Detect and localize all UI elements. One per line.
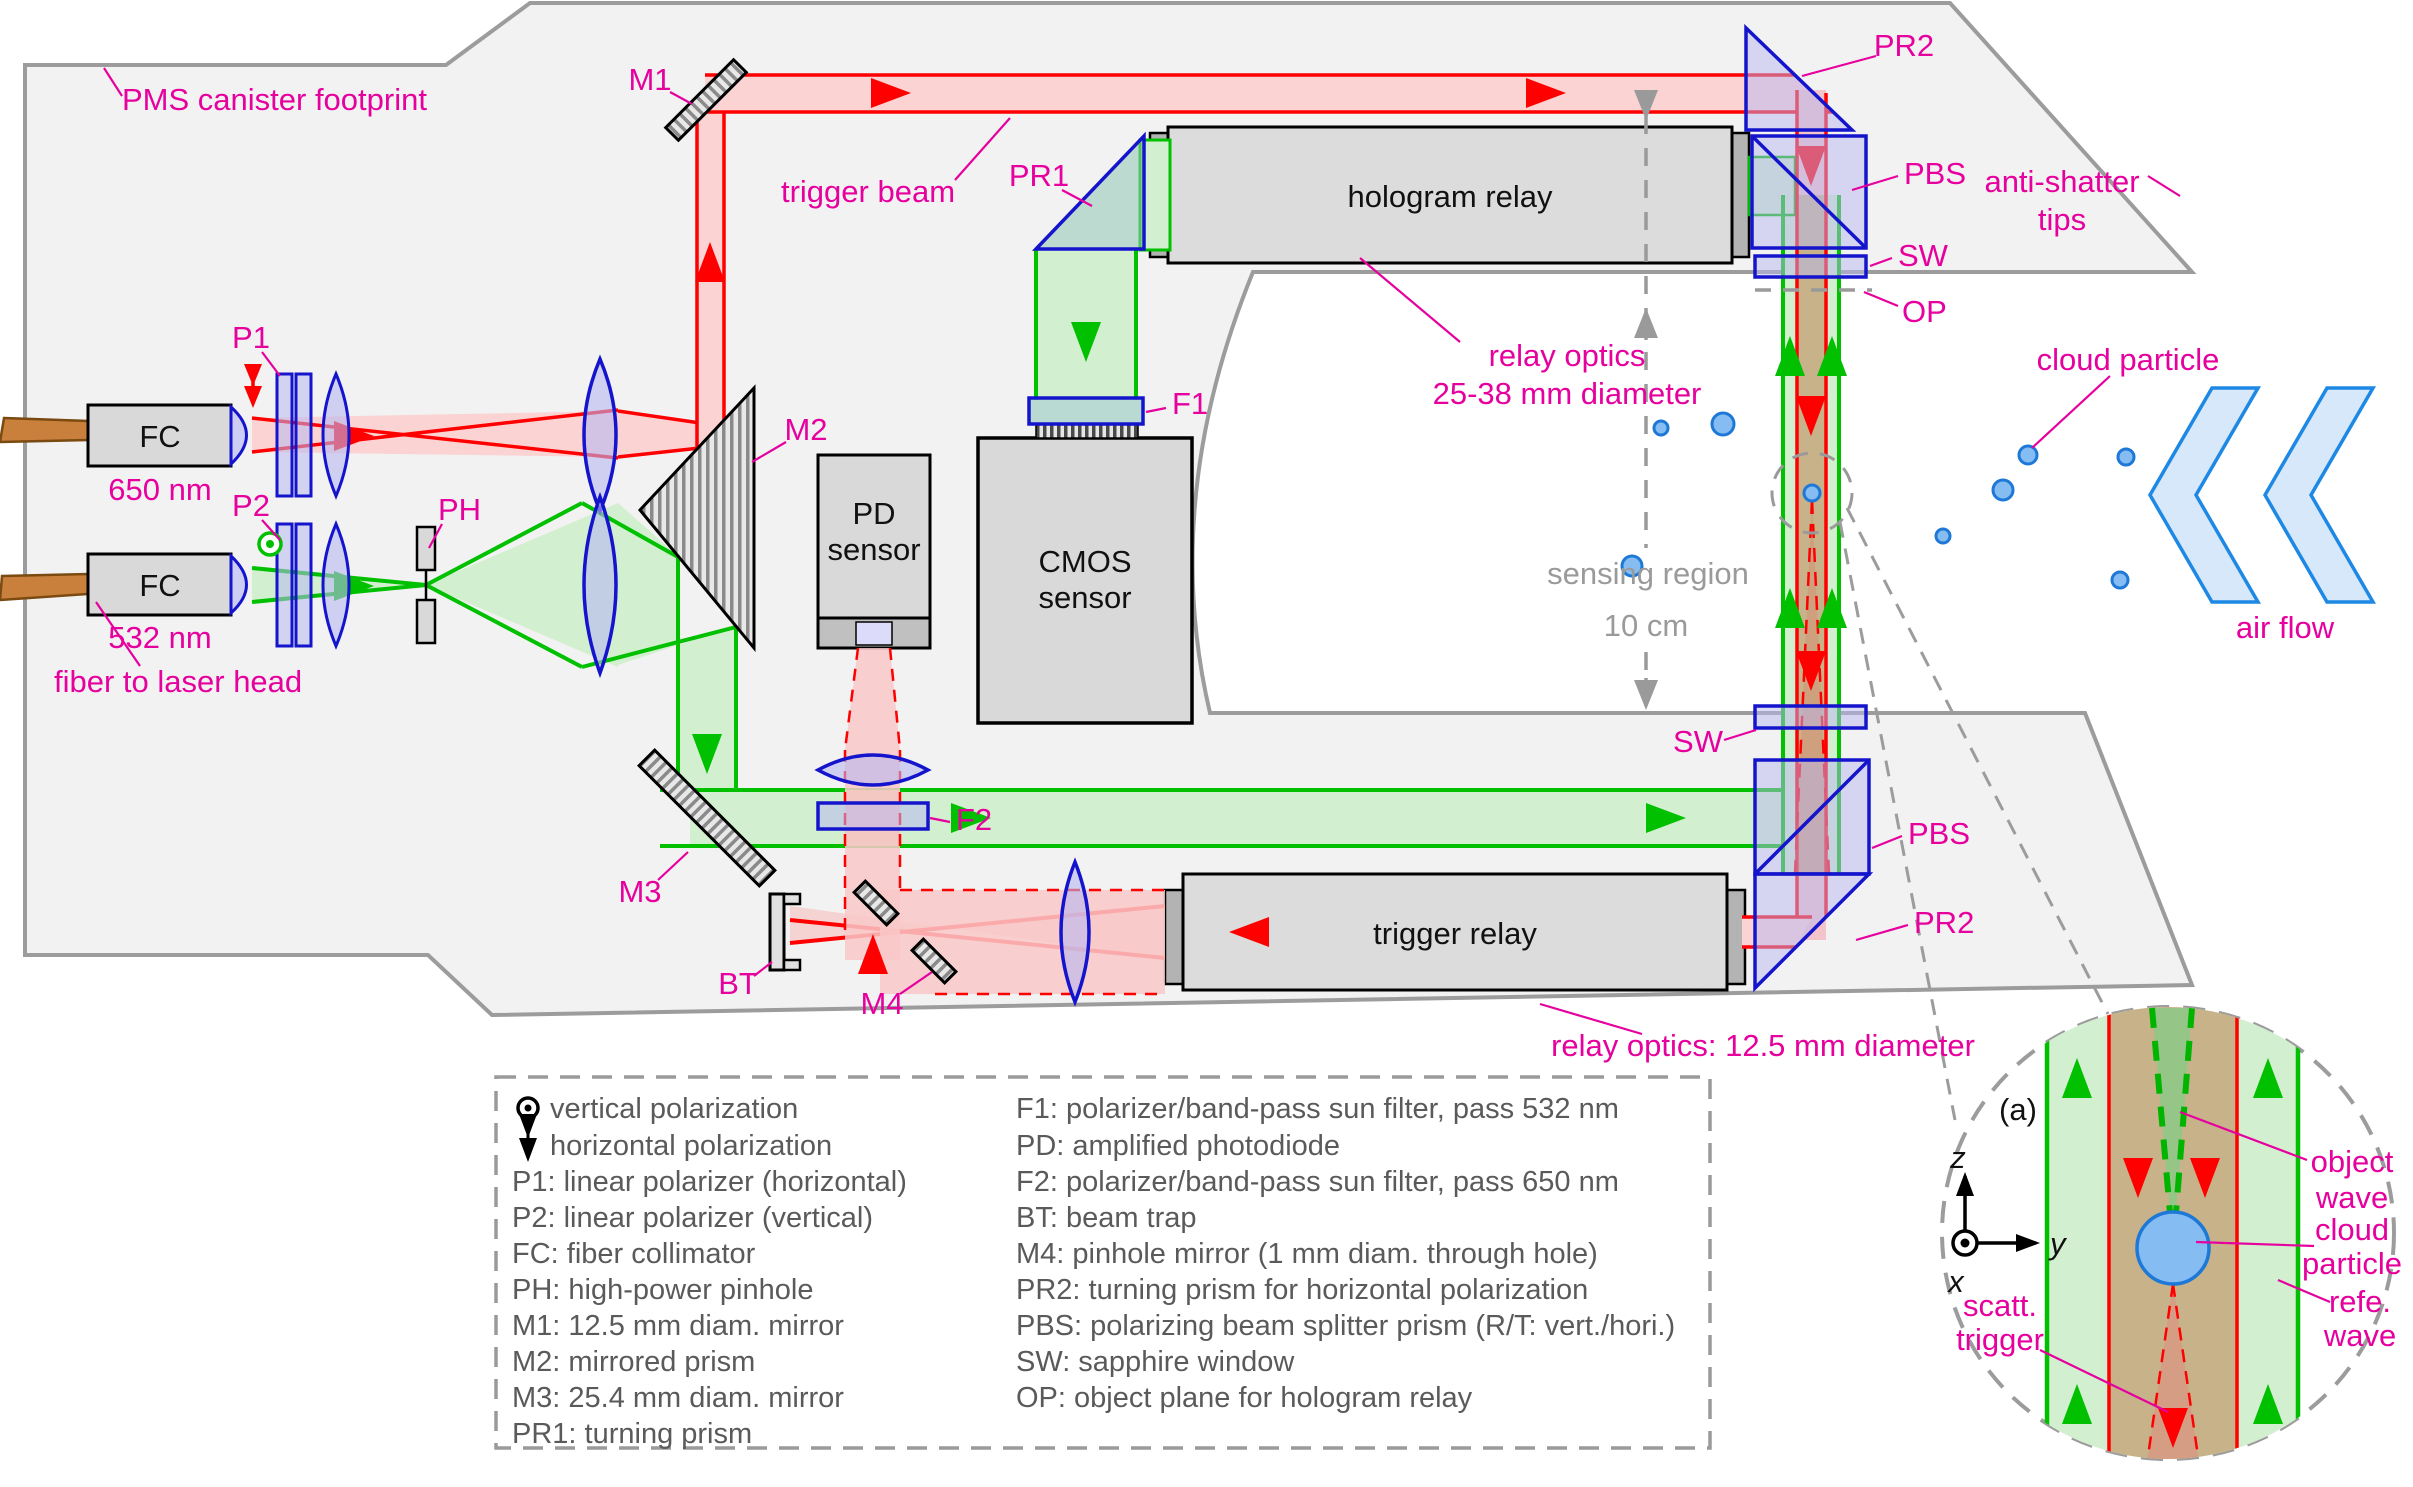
label-f2: F2 — [956, 802, 992, 837]
label-trigger-relay: trigger relay — [1373, 916, 1537, 951]
label-air-flow: air flow — [2236, 610, 2335, 645]
legend-box: vertical polarization horizontal polariz… — [496, 1077, 1710, 1450]
label-532nm: 532 nm — [108, 620, 211, 655]
label-fiber: fiber to laser head — [54, 664, 302, 699]
filter-f1 — [1029, 398, 1143, 424]
legend-right-4: M4: pinhole mirror (1 mm diam. through h… — [1016, 1238, 1598, 1270]
legend-left-7: M2: mirrored prism — [512, 1346, 755, 1378]
legend-left-5: PH: high-power pinhole — [512, 1274, 813, 1306]
label-ph: PH — [438, 492, 481, 527]
label-op: OP — [1902, 294, 1947, 329]
legend-left-1: horizontal polarization — [550, 1130, 832, 1162]
label-p1: P1 — [232, 320, 270, 355]
label-sw-top: SW — [1898, 238, 1949, 273]
label-anti-shatter-1: anti-shatter — [1984, 164, 2139, 199]
legend-left-0: vertical polarization — [550, 1093, 798, 1125]
label-relay-optics-bottom: relay optics: 12.5 mm diameter — [1551, 1028, 1975, 1063]
pbs-top — [1752, 136, 1866, 248]
label-relay-optics-top-1: relay optics — [1489, 338, 1646, 373]
legend-right-5: PR2: turning prism for horizontal polari… — [1016, 1274, 1588, 1306]
fiber-650 — [0, 418, 88, 442]
legend-left-9: PR1: turning prism — [512, 1418, 752, 1450]
label-pd-1: PD — [852, 496, 895, 531]
label-hologram-relay: hologram relay — [1347, 179, 1553, 214]
legend-left-2: P1: linear polarizer (horizontal) — [512, 1166, 907, 1198]
label-cmos-1: CMOS — [1039, 544, 1132, 579]
legend-left-8: M3: 25.4 mm diam. mirror — [512, 1382, 844, 1414]
axis-y: y — [2048, 1226, 2068, 1261]
label-scatt-trigger-1: scatt. — [1963, 1288, 2037, 1323]
label-fc-650: FC — [139, 419, 180, 454]
label-object-wave-1: object — [2311, 1144, 2394, 1179]
filter-f2 — [818, 803, 928, 829]
label-bt: BT — [718, 966, 758, 1001]
legend-right-0: F1: polarizer/band-pass sun filter, pass… — [1016, 1093, 1619, 1125]
label-m4: M4 — [860, 986, 903, 1021]
label-refe-wave-2: wave — [2323, 1318, 2396, 1353]
label-fc-532: FC — [139, 568, 180, 603]
legend-left-4: FC: fiber collimator — [512, 1238, 756, 1270]
legend-right-2: F2: polarizer/band-pass sun filter, pass… — [1016, 1166, 1619, 1198]
axis-z: z — [1949, 1140, 1966, 1175]
label-pd-2: sensor — [827, 532, 920, 567]
legend-right-1: PD: amplified photodiode — [1016, 1130, 1340, 1162]
legend-left-3: P2: linear polarizer (vertical) — [512, 1202, 873, 1234]
label-sensing-2: 10 cm — [1604, 608, 1688, 643]
label-pbs-top: PBS — [1904, 156, 1966, 191]
label-cmos-2: sensor — [1038, 580, 1131, 615]
label-f1: F1 — [1172, 386, 1208, 421]
label-sensing-1: sensing region — [1547, 556, 1749, 591]
label-pr2-top: PR2 — [1874, 28, 1934, 63]
legend-right-6: PBS: polarizing beam splitter prism (R/T… — [1016, 1310, 1675, 1342]
sapphire-window-bottom — [1755, 706, 1866, 728]
label-p2: P2 — [232, 488, 270, 523]
label-scatt-trigger-2: trigger — [1956, 1322, 2044, 1357]
sapphire-window-top — [1755, 256, 1866, 277]
red-beam-trigger-top — [705, 75, 1833, 112]
red-beam-trigger-column — [697, 95, 724, 449]
label-pr1: PR1 — [1009, 158, 1069, 193]
label-trigger-beam: trigger beam — [781, 174, 955, 209]
label-relay-optics-top-2: 25-38 mm diameter — [1433, 376, 1702, 411]
label-object-wave-2: wave — [2315, 1180, 2388, 1215]
label-m3: M3 — [618, 874, 661, 909]
fiber-532 — [0, 574, 88, 600]
label-pbs-bottom: PBS — [1908, 816, 1970, 851]
inset-a: (a) — [1999, 1092, 2037, 1127]
label-pr2-bottom: PR2 — [1914, 905, 1974, 940]
pbs-bottom — [1755, 760, 1869, 874]
label-inset-cloud-2: particle — [2302, 1246, 2402, 1281]
label-inset-cloud-1: cloud — [2315, 1212, 2389, 1247]
legend-left-6: M1: 12.5 mm diam. mirror — [512, 1310, 844, 1342]
label-refe-wave-1: refe. — [2329, 1284, 2391, 1319]
optical-layout-svg: PMS canister footprint M1 trigger beam P… — [0, 0, 2413, 1487]
legend-right-7: SW: sapphire window — [1016, 1346, 1295, 1378]
legend-right-3: BT: beam trap — [1016, 1202, 1197, 1234]
label-sw-bottom: SW — [1673, 724, 1724, 759]
inset-cloud-particle — [2137, 1212, 2209, 1284]
diagram-canvas: PMS canister footprint M1 trigger beam P… — [0, 0, 2413, 1487]
label-anti-shatter-2: tips — [2038, 202, 2086, 237]
label-650nm: 650 nm — [108, 472, 211, 507]
label-cloud-particle: cloud particle — [2037, 342, 2220, 377]
label-pms: PMS canister footprint — [122, 82, 427, 117]
airflow-chevrons — [2150, 388, 2373, 602]
inset-detail: z y x (a) object wave cloud particle ref… — [1942, 1005, 2402, 1470]
label-m1: M1 — [628, 62, 671, 97]
label-m2: M2 — [784, 412, 827, 447]
legend-right-8: OP: object plane for hologram relay — [1016, 1382, 1473, 1414]
